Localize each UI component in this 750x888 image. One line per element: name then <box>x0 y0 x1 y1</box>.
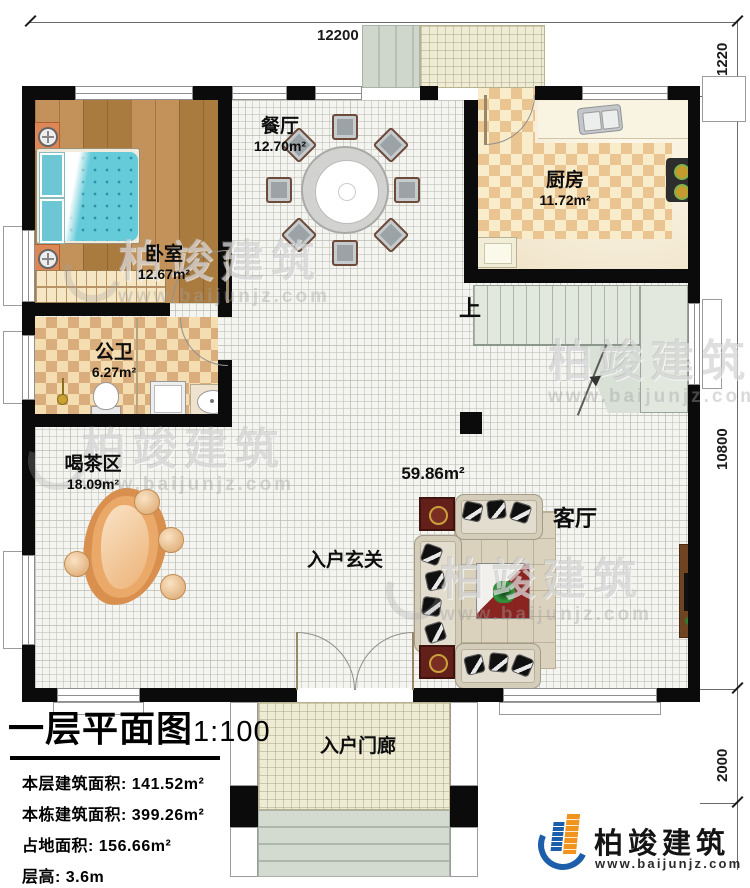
window <box>315 86 362 100</box>
room-name: 公卫 <box>82 342 146 364</box>
sofa-top <box>455 494 543 540</box>
room-label-bathroom: 公卫 6.27m² <box>82 342 146 380</box>
room-label-foyer: 入户玄关 <box>300 550 390 572</box>
window <box>75 86 193 100</box>
title-rule <box>10 756 220 760</box>
stat-line: 占地面积: 156.66m² <box>22 832 271 856</box>
room-label-kitchen: 厨房 11.72m² <box>530 170 600 208</box>
room-label-bedroom: 卧室 12.67m² <box>132 244 196 282</box>
wall <box>218 303 232 317</box>
wall-kitchen-bottom <box>464 269 700 283</box>
room-label-porch: 入户门廊 <box>308 736 408 758</box>
room-area: 11.72m² <box>530 192 600 208</box>
window-living <box>503 688 657 702</box>
dim-tick <box>24 15 36 27</box>
room-name: 客厅 <box>545 506 605 531</box>
room-area: 12.67m² <box>132 266 196 282</box>
window-sill <box>3 331 23 404</box>
room-name: 入户玄关 <box>300 550 390 572</box>
dim-line-top <box>30 22 737 23</box>
dining-chair <box>394 177 420 203</box>
room-name: 入户门廊 <box>308 736 408 758</box>
sofa-bottom <box>455 643 541 689</box>
dim-label-right-mid: 10800 <box>714 428 731 470</box>
dim-label-right-bottom: 2000 <box>714 749 731 782</box>
sofa-left <box>414 535 462 653</box>
bedroom-door-leaf <box>226 250 229 303</box>
room-area: 18.09m² <box>58 476 128 492</box>
bed <box>36 148 140 244</box>
stairs-landing-right <box>640 285 688 413</box>
living-area-label: 59.86m² <box>398 464 468 484</box>
stairs-flight <box>473 285 640 345</box>
window-sill <box>499 702 661 715</box>
window-sill <box>3 226 23 306</box>
wall <box>420 86 438 100</box>
tea-stool <box>158 527 184 553</box>
stairs-rail <box>473 344 640 346</box>
plan-scale: 1:100 <box>193 716 271 748</box>
wall <box>287 86 315 100</box>
floor-drain-stem <box>62 378 64 395</box>
coffee-table <box>476 563 530 619</box>
tea-stool <box>64 551 90 577</box>
stat-line: 层高: 3.6m <box>22 863 271 887</box>
window-kitchen <box>582 86 668 100</box>
porch-column-right <box>450 786 478 827</box>
room-area: 6.27m² <box>82 364 146 380</box>
tea-stool <box>134 489 160 515</box>
dim-label-width: 12200 <box>317 27 359 44</box>
window-sill <box>3 551 23 649</box>
porch-side-right <box>450 702 478 786</box>
stat-line: 本层建筑面积: 141.52m² <box>22 770 271 794</box>
window <box>232 86 287 100</box>
dim-line-right <box>737 22 738 870</box>
window-bathroom <box>22 335 35 400</box>
plan-title: 一层平面图 <box>8 708 193 749</box>
side-table <box>419 497 455 531</box>
wall <box>413 688 503 702</box>
dining-chair <box>332 240 358 266</box>
wall <box>688 385 700 702</box>
side-table <box>419 645 455 679</box>
wall-kitchen-left <box>464 100 478 283</box>
window-sill <box>702 299 722 389</box>
wall <box>193 86 232 100</box>
kitchen-cabinet <box>477 237 517 268</box>
entry-door-right-leaf <box>412 632 414 690</box>
room-label-living: 客厅 <box>545 506 605 531</box>
room-area: 12.70m² <box>235 138 325 154</box>
porch-side-right <box>450 827 478 877</box>
kitchen-back-door-leaf <box>484 95 487 145</box>
back-porch-steps <box>362 25 420 88</box>
room-label-dining: 餐厅 12.70m² <box>235 116 325 154</box>
shower-tray <box>150 381 186 417</box>
title-block: 一层平面图1:100 本层建筑面积: 141.52m² 本栋建筑面积: 399.… <box>8 700 271 887</box>
dining-chair <box>332 114 358 140</box>
toilet <box>93 382 119 410</box>
tea-stool <box>160 574 186 600</box>
window-sill <box>702 76 746 122</box>
room-name: 厨房 <box>530 170 600 192</box>
dim-label-right-top: 1220 <box>714 43 731 76</box>
stairs-up-label: 上 <box>455 296 485 321</box>
wall <box>535 86 582 100</box>
window-bedroom <box>22 230 35 302</box>
back-porch-tile <box>420 25 545 88</box>
column <box>460 412 482 434</box>
wall-bedroom-bottom <box>22 303 170 316</box>
dining-table <box>301 146 389 234</box>
dining-chair <box>266 177 292 203</box>
room-area: 59.86m² <box>398 464 468 484</box>
entry-steps <box>258 810 450 877</box>
room-name: 喝茶区 <box>58 454 128 476</box>
wall-bathroom-bottom <box>22 414 232 427</box>
room-name: 餐厅 <box>235 116 325 138</box>
brand-url: www.baijunjz.com <box>595 856 742 871</box>
room-name: 卧室 <box>132 244 196 266</box>
floor-drain <box>57 394 68 405</box>
kitchen-sink <box>577 104 624 135</box>
window-stairs <box>688 303 700 385</box>
wall <box>657 688 700 702</box>
floor-plan-canvas: 12200 1220 10800 2000 <box>0 0 750 888</box>
wall <box>22 86 35 230</box>
room-label-tea: 喝茶区 18.09m² <box>58 454 128 492</box>
window-tea <box>22 555 35 645</box>
entry-door-left-leaf <box>296 632 298 690</box>
stat-line: 本栋建筑面积: 399.26m² <box>22 801 271 825</box>
